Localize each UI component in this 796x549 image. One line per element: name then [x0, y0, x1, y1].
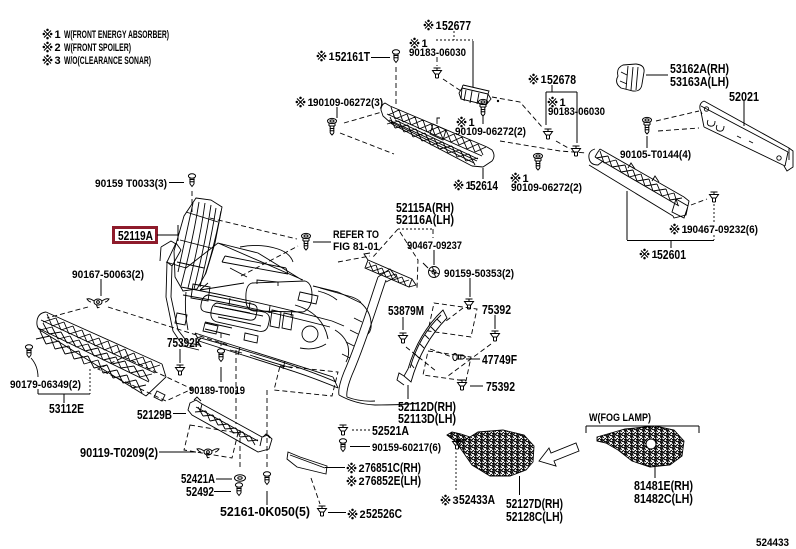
svg-text:FIG 81-01: FIG 81-01: [333, 241, 379, 253]
svg-text:90109-06272(2): 90109-06272(2): [511, 182, 582, 194]
svg-text:76852E(LH): 76852E(LH): [365, 473, 421, 488]
svg-text:2: 2: [359, 463, 365, 475]
svg-text:52129B: 52129B: [137, 407, 172, 422]
svg-text:W/O(CLEARANCE SONAR): W/O(CLEARANCE SONAR): [64, 55, 151, 67]
svg-text:90159-50353(2): 90159-50353(2): [444, 268, 514, 280]
svg-text:75392: 75392: [486, 379, 515, 394]
svg-text:52526C: 52526C: [366, 506, 402, 521]
svg-text:52116A(LH): 52116A(LH): [396, 212, 454, 227]
svg-text:90467-09232(6): 90467-09232(6): [687, 224, 758, 236]
svg-text:1: 1: [436, 20, 442, 32]
svg-text:90159-60217(6): 90159-60217(6): [372, 442, 441, 454]
svg-text:52128C(LH): 52128C(LH): [506, 509, 563, 524]
svg-text:52119A: 52119A: [118, 228, 153, 243]
svg-text:47749F: 47749F: [482, 352, 517, 367]
svg-text:W(FRONT ENERGY ABSORBER): W(FRONT ENERGY ABSORBER): [64, 29, 169, 41]
svg-text:75392: 75392: [482, 302, 511, 317]
svg-text:REFER TO: REFER TO: [333, 229, 379, 241]
svg-text:1: 1: [55, 29, 61, 41]
svg-text:90167-50063(2): 90167-50063(2): [72, 269, 144, 281]
svg-text:W(FRONT SPOILER): W(FRONT SPOILER): [64, 42, 131, 54]
svg-text:2: 2: [360, 509, 366, 521]
svg-text:1: 1: [329, 51, 335, 63]
svg-text:52161T: 52161T: [335, 49, 370, 64]
svg-text:1: 1: [541, 74, 547, 86]
svg-text:3: 3: [55, 55, 61, 67]
svg-text:90183-06030: 90183-06030: [409, 47, 466, 59]
svg-text:53879M: 53879M: [388, 303, 424, 318]
svg-text:52433A: 52433A: [459, 492, 495, 507]
svg-text:81482C(LH): 81482C(LH): [634, 491, 693, 506]
svg-text:53163A(LH): 53163A(LH): [670, 74, 729, 89]
svg-text:90179-06349(2): 90179-06349(2): [10, 379, 81, 391]
svg-text:90105-T0144(4): 90105-T0144(4): [620, 149, 691, 161]
svg-text:3: 3: [453, 495, 459, 507]
svg-text:52678: 52678: [547, 72, 576, 87]
svg-text:90119-T0209(2): 90119-T0209(2): [80, 445, 158, 460]
svg-text:90109-06272(2): 90109-06272(2): [455, 126, 526, 138]
svg-text:W(FOG LAMP): W(FOG LAMP): [589, 412, 651, 424]
svg-text:90189-T0019: 90189-T0019: [189, 385, 245, 397]
svg-text:52601: 52601: [657, 247, 686, 262]
svg-text:90159 T0033(3): 90159 T0033(3): [95, 178, 167, 190]
svg-text:52614: 52614: [470, 178, 499, 193]
svg-text:53112E: 53112E: [49, 401, 84, 416]
svg-text:90109-06272(3): 90109-06272(3): [313, 97, 383, 109]
svg-text:52492: 52492: [186, 484, 214, 499]
svg-text:52161-0K050(5): 52161-0K050(5): [220, 504, 310, 519]
svg-text:52521A: 52521A: [372, 423, 409, 438]
svg-text:2: 2: [55, 42, 61, 54]
svg-text:52677: 52677: [442, 18, 471, 33]
svg-text:524433: 524433: [756, 537, 789, 549]
svg-text:2: 2: [359, 476, 365, 488]
